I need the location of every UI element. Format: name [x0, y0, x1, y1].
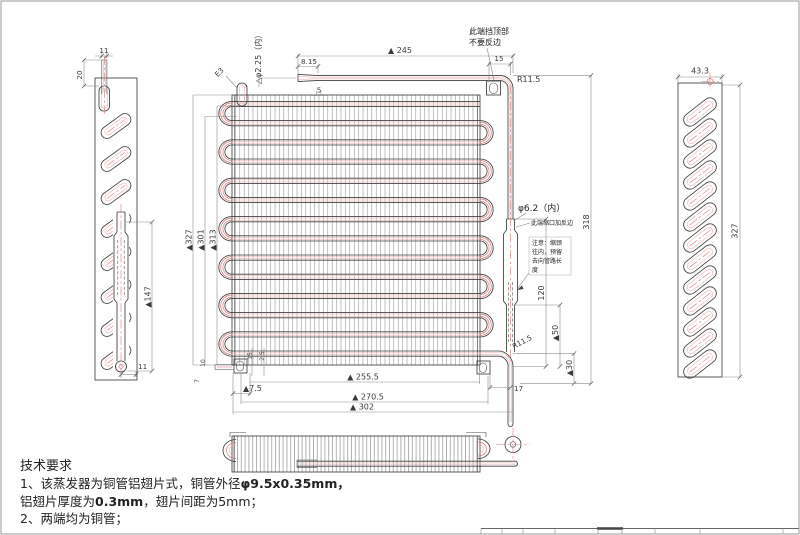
- dim-out-30: ▲30: [565, 360, 574, 376]
- dim-height-301: ▲301: [197, 229, 206, 250]
- dim-bottom-11: 11: [138, 362, 147, 371]
- note-neck: 此端缩口加反边: [531, 219, 573, 227]
- dim-tube-length-245: ▲ 245: [388, 46, 412, 55]
- tech-title: 技术要求: [20, 459, 72, 474]
- accumulator-assembly: [480, 85, 518, 427]
- dim-top-offset-15: 15: [494, 54, 503, 63]
- top-tube: [298, 74, 513, 88]
- tech-line1: 1、该蒸发器为铜管铝翅片式，铜管外径φ9.5x0.35mm，: [20, 476, 350, 491]
- dim-acc-120: 120: [537, 285, 546, 300]
- caution-line2: 往内，预留: [532, 248, 562, 256]
- evaporator-cad-drawing: 11 20 ▲147 11: [0, 0, 800, 535]
- dim-height-313: ▲313: [209, 229, 218, 250]
- tech-line3: 2、两端均为铜管；: [20, 511, 128, 526]
- dim-width-270-5: ▲ 270.5: [352, 393, 384, 402]
- dim-stub-10: 10: [200, 359, 207, 367]
- tech-line2: 铝翅片厚度为0.3mm，翅片间距为5mm；: [20, 494, 263, 509]
- dim-out-17: 17: [514, 384, 523, 393]
- dim-offset-7-5: ▲7.5: [243, 384, 262, 393]
- dim-stub-2-5: 2.5: [259, 351, 266, 361]
- note-top-line2: 不要反边: [469, 37, 501, 47]
- bottom-view: [223, 428, 530, 472]
- dim-stub-height: 20: [75, 70, 84, 80]
- dim-stub-7: 7: [194, 379, 201, 383]
- note-top-line1: 此端挡顶部: [469, 26, 509, 36]
- dim-center-tube-147: ▲147: [144, 286, 153, 307]
- label-e3: E3: [213, 66, 226, 79]
- label-outlet-diameter: φ6.2（内）: [518, 202, 565, 214]
- dim-width-302: ▲ 302: [350, 403, 374, 412]
- dim-stub-15: 15: [247, 352, 254, 360]
- dim-acc-50: ▲50: [551, 325, 560, 341]
- dim-height-318: 318: [582, 214, 591, 229]
- label-r11-top: R11.5: [517, 75, 540, 84]
- left-side-view: 11 20 ▲147 11: [75, 46, 154, 380]
- dim-rightview-width: 43.3: [691, 67, 709, 76]
- drawing-canvas: 11 20 ▲147 11: [0, 0, 800, 535]
- fin-pack: [232, 95, 480, 365]
- label-inlet-diameter: △φ2.25（内）: [253, 31, 263, 84]
- caution-line4: 度: [532, 266, 538, 274]
- right-side-view: 43.3 327: [676, 67, 742, 381]
- dim-rightview-height: 327: [731, 223, 740, 238]
- dim-fin-pitch-5: 5: [317, 86, 322, 95]
- dim-flare-8-15: 8.15: [301, 57, 317, 66]
- caution-line3: 去向管路长: [532, 257, 562, 265]
- dim-width-255-5: ▲ 255.5: [347, 373, 379, 382]
- caution-line1: 注意：缩颈: [532, 239, 562, 247]
- dim-height-327: ▲327: [185, 229, 194, 250]
- dim-stub-width: 11: [99, 46, 108, 55]
